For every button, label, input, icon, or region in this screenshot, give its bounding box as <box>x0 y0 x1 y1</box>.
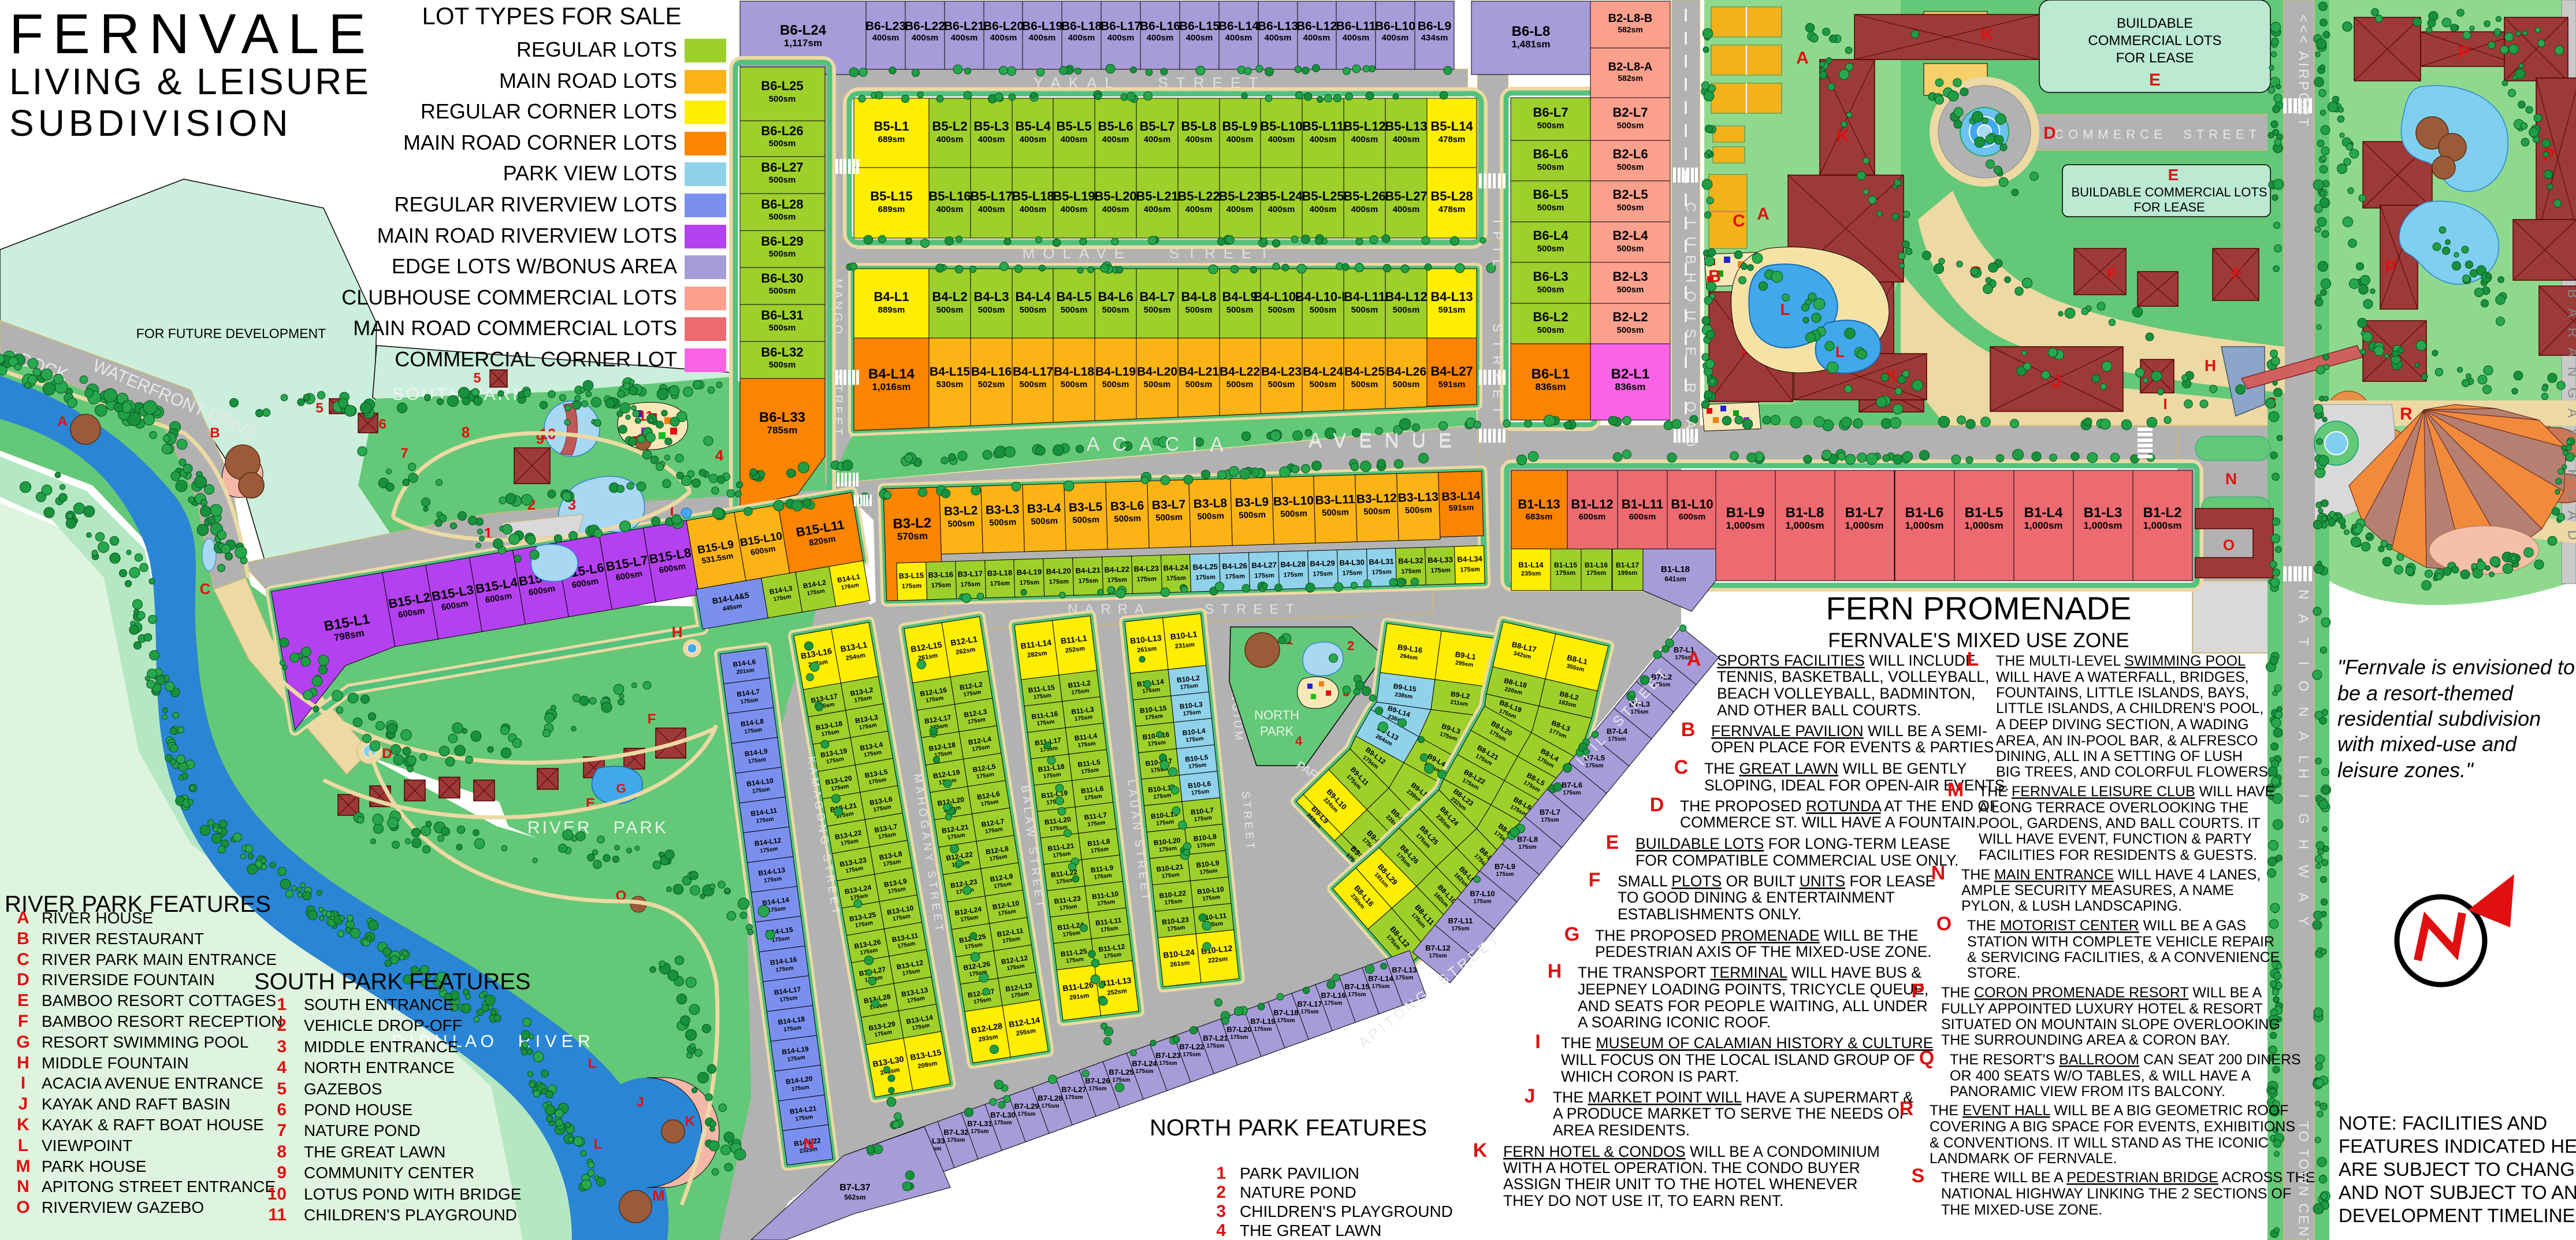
svg-text:B7-L26: B7-L26 <box>1085 1076 1110 1085</box>
svg-text:478sm: 478sm <box>1438 205 1466 214</box>
svg-text:C L U B H O U S E R O A D: C L U B H O U S E R O A D <box>1683 202 1698 449</box>
svg-text:1,000sm: 1,000sm <box>2143 520 2181 531</box>
svg-text:500sm: 500sm <box>1226 305 1254 315</box>
svg-text:175sm: 175sm <box>1254 1026 1272 1033</box>
svg-text:B1-L5: B1-L5 <box>1965 505 2003 521</box>
svg-text:B7-L14: B7-L14 <box>1368 974 1393 983</box>
svg-text:REGULAR CORNER LOTS: REGULAR CORNER LOTS <box>421 99 677 123</box>
svg-text:B5-L23: B5-L23 <box>1218 189 1261 203</box>
svg-text:B4-L10-B: B4-L10-B <box>1295 289 1351 304</box>
svg-text:B6-L29: B6-L29 <box>761 234 803 248</box>
svg-text:FEATURES INDICATED HERE: FEATURES INDICATED HERE <box>2339 1135 2576 1157</box>
svg-text:175sm: 175sm <box>1395 975 1413 981</box>
svg-text:COMMERCE ST. WILL HAVE A FOUNT: COMMERCE ST. WILL HAVE A FOUNTAIN. <box>1680 814 1980 831</box>
svg-text:F: F <box>2107 265 2116 282</box>
svg-text:591sm: 591sm <box>1438 380 1466 389</box>
svg-text:KAYAK AND RAFT BASIN: KAYAK AND RAFT BASIN <box>42 1095 231 1113</box>
svg-text:B4-L18: B4-L18 <box>1054 365 1094 378</box>
svg-text:B1-L12: B1-L12 <box>1571 497 1613 511</box>
svg-text:1,481sm: 1,481sm <box>1511 39 1550 50</box>
svg-text:B: B <box>17 929 29 948</box>
svg-text:E: E <box>2168 166 2179 184</box>
svg-text:B7-L8: B7-L8 <box>1517 835 1538 844</box>
svg-text:Q: Q <box>1919 1047 1934 1069</box>
svg-text:PEDESTRIAN AXIS OF THE MIXED-U: PEDESTRIAN AXIS OF THE MIXED-USE ZONE. <box>1595 943 1932 960</box>
svg-text:1,000sm: 1,000sm <box>1726 520 1764 531</box>
svg-text:175sm: 175sm <box>1183 1052 1200 1058</box>
svg-text:400sm: 400sm <box>1020 205 1047 214</box>
svg-text:B6-L32: B6-L32 <box>761 345 803 359</box>
svg-text:BAMBOO RESORT RECEPTION: BAMBOO RESORT RECEPTION <box>42 1012 282 1030</box>
svg-text:REGULAR LOTS: REGULAR LOTS <box>516 38 677 61</box>
svg-text:FOR FUTURE DEVELOPMENT: FOR FUTURE DEVELOPMENT <box>136 326 326 341</box>
svg-text:THE FERNVALE LEISURE CLUB WILL: THE FERNVALE LEISURE CLUB WILL HAVE <box>1979 784 2274 800</box>
svg-text:175sm: 175sm <box>961 581 981 588</box>
svg-text:FERNVALE PAVILION WILL BE A SE: FERNVALE PAVILION WILL BE A SEMI- <box>1711 722 1987 740</box>
svg-text:500sm: 500sm <box>1061 305 1088 315</box>
svg-text:B2-L6: B2-L6 <box>1612 147 1648 161</box>
svg-text:175sm: 175sm <box>1300 1009 1318 1015</box>
svg-text:582sm: 582sm <box>1618 25 1643 34</box>
svg-text:COVERING A BIG SPACE FOR EVENT: COVERING A BIG SPACE FOR EVENTS, EXHIBIT… <box>1930 1119 2295 1135</box>
svg-text:B5-L10: B5-L10 <box>1260 119 1302 133</box>
svg-text:THE GREAT LAWN: THE GREAT LAWN <box>304 1143 445 1161</box>
svg-text:B5-L18: B5-L18 <box>1012 189 1054 203</box>
svg-text:B1-L4: B1-L4 <box>2024 505 2063 521</box>
svg-text:683sm: 683sm <box>1526 512 1553 522</box>
svg-text:500sm: 500sm <box>769 360 796 370</box>
svg-text:B6-L26: B6-L26 <box>761 124 803 138</box>
svg-text:PANORAMIC VIEW FROM ITS BALCON: PANORAMIC VIEW FROM ITS BALCONY. <box>1950 1083 2225 1100</box>
svg-text:175sm: 175sm <box>1518 844 1536 851</box>
svg-text:WILL HAVE EVENT, FUNCTION & PA: WILL HAVE EVENT, FUNCTION & PARTY <box>1979 831 2252 847</box>
svg-text:B5-L25: B5-L25 <box>1302 189 1344 203</box>
svg-text:B4-L30: B4-L30 <box>1339 558 1365 567</box>
svg-text:DEVELOPMENT TIMELINE.: DEVELOPMENT TIMELINE. <box>2339 1205 2576 1226</box>
svg-text:400sm: 400sm <box>978 205 1005 214</box>
svg-text:B4-L5: B4-L5 <box>1056 289 1091 304</box>
svg-text:175sm: 175sm <box>1254 572 1274 580</box>
svg-text:500sm: 500sm <box>769 212 796 222</box>
svg-text:B5-L16: B5-L16 <box>928 189 971 203</box>
svg-text:APITONG STREET ENTRANCE: APITONG STREET ENTRANCE <box>42 1178 276 1196</box>
svg-text:1,000sm: 1,000sm <box>1785 520 1824 531</box>
svg-text:1,016sm: 1,016sm <box>872 381 910 392</box>
svg-text:PARK: PARK <box>1260 724 1294 738</box>
svg-text:562sm: 562sm <box>844 1193 865 1201</box>
svg-text:500sm: 500sm <box>1363 506 1391 517</box>
svg-text:500sm: 500sm <box>1185 305 1213 315</box>
svg-text:600sm: 600sm <box>1579 512 1606 522</box>
svg-text:400sm: 400sm <box>1061 205 1088 214</box>
svg-text:400sm: 400sm <box>1185 205 1213 214</box>
svg-text:175sm: 175sm <box>1429 953 1447 959</box>
svg-text:NATIONAL HIGHWAY LINKING THE 2: NATIONAL HIGHWAY LINKING THE 2 SECTIONS … <box>1941 1186 2291 1202</box>
svg-text:B6-L17: B6-L17 <box>1101 20 1141 33</box>
svg-text:8: 8 <box>462 424 470 441</box>
svg-text:ESTABLISHMENTS ONLY.: ESTABLISHMENTS ONLY. <box>1618 905 1801 923</box>
svg-text:500sm: 500sm <box>947 518 975 529</box>
svg-text:3: 3 <box>1216 1202 1226 1221</box>
svg-text:"Fernvale is envisioned to: "Fernvale is envisioned to <box>2337 655 2575 679</box>
svg-text:500sm: 500sm <box>769 323 796 333</box>
svg-text:BAMBOO RESORT COTTAGES: BAMBOO RESORT COTTAGES <box>42 992 276 1009</box>
svg-text:400sm: 400sm <box>1351 205 1378 214</box>
svg-text:C: C <box>17 950 29 969</box>
svg-text:B6-L12: B6-L12 <box>1296 20 1337 33</box>
svg-text:O: O <box>2223 536 2235 554</box>
svg-text:B1-L6: B1-L6 <box>1905 505 1944 521</box>
svg-text:D: D <box>17 970 29 989</box>
svg-text:AREA, AN IN-POOL BAR, & ALFRES: AREA, AN IN-POOL BAR, & ALFRESCO <box>1996 733 2258 749</box>
svg-text:B7-L16: B7-L16 <box>1321 991 1345 1000</box>
svg-text:B3-L10: B3-L10 <box>1273 494 1314 508</box>
svg-text:OPEN PLACE FOR EVENTS & PARTIE: OPEN PLACE FOR EVENTS & PARTIES. <box>1711 738 1998 756</box>
svg-text:500sm: 500sm <box>1226 380 1254 389</box>
svg-text:500sm: 500sm <box>1144 305 1171 315</box>
svg-text:500sm: 500sm <box>1351 305 1378 315</box>
svg-text:400sm: 400sm <box>1225 33 1252 43</box>
svg-text:B3-L4: B3-L4 <box>1027 502 1061 516</box>
svg-text:1,000sm: 1,000sm <box>2083 520 2122 531</box>
svg-text:B5-L24: B5-L24 <box>1260 189 1303 203</box>
svg-text:B6-L8: B6-L8 <box>1512 24 1551 39</box>
svg-text:1,000sm: 1,000sm <box>1964 520 2003 531</box>
svg-text:AVENUE: AVENUE <box>1309 429 1464 451</box>
svg-text:B6-L10: B6-L10 <box>1375 20 1415 33</box>
svg-text:F: F <box>648 711 656 727</box>
svg-text:KAYAK & RAFT BOAT HOUSE: KAYAK & RAFT BOAT HOUSE <box>42 1116 264 1134</box>
svg-text:400sm: 400sm <box>1393 135 1420 144</box>
svg-text:<<< AIRPORT: <<< AIRPORT <box>2296 14 2311 129</box>
svg-text:400sm: 400sm <box>936 205 964 214</box>
svg-text:500sm: 500sm <box>1322 507 1349 518</box>
svg-text:400sm: 400sm <box>1061 135 1088 144</box>
svg-text:400sm: 400sm <box>1351 135 1378 144</box>
svg-text:CLUBHOUSE COMMERCIAL LOTS: CLUBHOUSE COMMERCIAL LOTS <box>341 285 677 309</box>
svg-text:P: P <box>1912 980 1925 1002</box>
svg-text:B4-L19: B4-L19 <box>1016 567 1042 577</box>
svg-text:THE GREAT LAWN: THE GREAT LAWN <box>1240 1222 1381 1239</box>
svg-text:L: L <box>18 1136 28 1155</box>
svg-text:B4-L3: B4-L3 <box>973 289 1009 304</box>
svg-text:175sm: 175sm <box>1206 1043 1224 1049</box>
svg-text:K: K <box>1473 1139 1488 1161</box>
svg-text:4: 4 <box>715 447 724 464</box>
svg-text:& SERVICING FACILITIES, & A CO: & SERVICING FACILITIES, & A CONVENIENCE <box>1967 949 2280 966</box>
svg-text:B5-L14: B5-L14 <box>1430 119 1473 133</box>
svg-text:1,000sm: 1,000sm <box>2024 520 2062 531</box>
svg-text:500sm: 500sm <box>769 94 796 104</box>
svg-text:THE SURROUNDING AREA & CORON B: THE SURROUNDING AREA & CORON BAY. <box>1941 1032 2231 1048</box>
svg-text:500sm: 500sm <box>1061 380 1088 389</box>
svg-text:B7-L17: B7-L17 <box>1297 1000 1322 1008</box>
svg-text:B7-L31: B7-L31 <box>967 1119 992 1128</box>
svg-text:B3-L9: B3-L9 <box>1235 495 1269 510</box>
svg-text:B5-L22: B5-L22 <box>1177 189 1220 203</box>
svg-text:500sm: 500sm <box>1617 121 1644 131</box>
svg-text:FOR COMPATIBLE COMMERCIAL USE: FOR COMPATIBLE COMMERCIAL USE ONLY. <box>1635 852 1959 869</box>
svg-text:1,000sm: 1,000sm <box>1845 520 1883 531</box>
svg-text:K: K <box>1837 127 1849 146</box>
svg-text:B7-L37: B7-L37 <box>839 1183 870 1193</box>
svg-text:3: 3 <box>277 1037 287 1056</box>
svg-text:B4-L12: B4-L12 <box>1385 289 1427 304</box>
svg-text:RIVERVIEW GAZEBO: RIVERVIEW GAZEBO <box>42 1198 204 1216</box>
svg-text:500sm: 500sm <box>978 305 1005 315</box>
svg-text:EDGE LOTS W/BONUS AREA: EDGE LOTS W/BONUS AREA <box>392 254 677 278</box>
svg-text:500sm: 500sm <box>1351 380 1378 389</box>
svg-text:B7-L6: B7-L6 <box>1562 781 1582 789</box>
svg-text:10: 10 <box>267 1185 287 1204</box>
svg-text:175sm: 175sm <box>1017 1111 1035 1118</box>
svg-text:175sm: 175sm <box>1348 992 1366 998</box>
svg-text:500sm: 500sm <box>769 249 796 259</box>
svg-text:B2-L3: B2-L3 <box>1612 269 1648 284</box>
svg-text:B4-L20: B4-L20 <box>1046 566 1071 576</box>
svg-text:BUILDABLE LOTS FOR LONG-TERM L: BUILDABLE LOTS FOR LONG-TERM LEASE <box>1635 835 1950 852</box>
svg-text:B6-L25: B6-L25 <box>761 79 803 93</box>
svg-text:leisure zones.": leisure zones." <box>2337 758 2474 782</box>
svg-text:B4-L4: B4-L4 <box>1015 289 1051 304</box>
svg-text:B1-L18: B1-L18 <box>1661 565 1690 574</box>
svg-text:E: E <box>2149 70 2161 90</box>
svg-text:I: I <box>1535 1031 1540 1053</box>
svg-text:400sm: 400sm <box>1382 33 1409 43</box>
svg-text:NORTH: NORTH <box>1254 708 1299 722</box>
svg-text:A DEEP DIVING SECTION, A WADIN: A DEEP DIVING SECTION, A WADING <box>1996 716 2249 733</box>
svg-text:B4-L21: B4-L21 <box>1075 566 1101 575</box>
svg-text:2: 2 <box>1216 1183 1226 1202</box>
svg-text:B: B <box>210 425 220 441</box>
svg-text:570sm: 570sm <box>897 530 928 543</box>
svg-text:JEEPNEY LOADING POINTS, TRICYC: JEEPNEY LOADING POINTS, TRICYCLE QUEUE, <box>1578 981 1928 998</box>
svg-text:B7-L10: B7-L10 <box>1470 889 1495 898</box>
svg-text:B6-L2: B6-L2 <box>1533 310 1568 324</box>
svg-text:B5-L27: B5-L27 <box>1385 189 1427 203</box>
svg-text:B4-L25: B4-L25 <box>1192 562 1218 571</box>
svg-text:400sm: 400sm <box>978 135 1005 144</box>
svg-text:B4-L14: B4-L14 <box>868 366 915 382</box>
svg-text:500sm: 500sm <box>1537 244 1564 254</box>
svg-text:THE TRANSPORT TERMINAL WILL HA: THE TRANSPORT TERMINAL WILL HAVE BUS & <box>1578 964 1921 981</box>
svg-text:600sm: 600sm <box>1629 512 1656 522</box>
svg-text:400sm: 400sm <box>990 33 1017 43</box>
svg-text:MIDDLE FOUNTAIN: MIDDLE FOUNTAIN <box>42 1054 189 1072</box>
svg-text:175sm: 175sm <box>1496 871 1514 878</box>
svg-text:175sm: 175sm <box>1283 571 1303 578</box>
svg-text:400sm: 400sm <box>1226 205 1254 214</box>
svg-text:7: 7 <box>277 1121 287 1140</box>
svg-text:O: O <box>16 1198 29 1217</box>
svg-text:434sm: 434sm <box>1421 33 1448 43</box>
svg-text:B5-L26: B5-L26 <box>1343 189 1385 203</box>
svg-text:B6-L1: B6-L1 <box>1532 366 1570 382</box>
svg-text:1: 1 <box>277 995 287 1014</box>
svg-text:CHILDREN'S PLAYGROUND: CHILDREN'S PLAYGROUND <box>1240 1202 1453 1220</box>
svg-text:D: D <box>2043 124 2056 143</box>
svg-text:COMMUNITY CENTER: COMMUNITY CENTER <box>304 1164 474 1182</box>
svg-text:LANDMARK OF FERNVALE.: LANDMARK OF FERNVALE. <box>1930 1150 2117 1167</box>
svg-text:400sm: 400sm <box>1107 33 1135 43</box>
svg-text:G: G <box>16 1033 29 1052</box>
svg-text:B5-L2: B5-L2 <box>932 119 967 133</box>
svg-text:B7-L18: B7-L18 <box>1273 1008 1298 1017</box>
svg-text:residential subdivision: residential subdivision <box>2337 707 2541 730</box>
svg-text:H: H <box>672 623 683 641</box>
svg-text:K: K <box>1981 25 1994 44</box>
svg-text:J: J <box>636 1094 644 1110</box>
svg-text:AND NOT SUBJECT TO ANY: AND NOT SUBJECT TO ANY <box>2339 1182 2576 1203</box>
svg-text:B6-L13: B6-L13 <box>1258 20 1298 33</box>
svg-text:B2-L8-B: B2-L8-B <box>1608 12 1653 25</box>
svg-text:H I G H W A Y: H I G H W A Y <box>2296 768 2311 931</box>
svg-text:I: I <box>21 1074 25 1093</box>
svg-text:E: E <box>1606 831 1619 853</box>
svg-text:B4-L9: B4-L9 <box>1222 289 1257 304</box>
svg-text:B3-L15: B3-L15 <box>899 571 924 580</box>
svg-text:B3-L14: B3-L14 <box>1441 489 1481 503</box>
svg-text:B7-L23: B7-L23 <box>1155 1051 1180 1060</box>
svg-text:B4-L11: B4-L11 <box>1344 289 1385 304</box>
svg-text:A LONG TERRACE OVERLOOKING THE: A LONG TERRACE OVERLOOKING THE <box>1979 800 2248 816</box>
svg-text:BUILDABLE: BUILDABLE <box>2117 16 2193 31</box>
svg-text:L: L <box>1835 343 1845 361</box>
svg-text:L: L <box>594 1137 603 1152</box>
svg-text:175sm: 175sm <box>990 580 1010 588</box>
svg-text:L: L <box>1967 648 1979 670</box>
svg-text:B7-L20: B7-L20 <box>1226 1025 1251 1034</box>
svg-text:C: C <box>1733 211 1745 231</box>
svg-text:DINING, ALL IN A SETTING OF LU: DINING, ALL IN A SETTING OF LUSH <box>1996 748 2243 764</box>
svg-text:B6-L19: B6-L19 <box>1022 20 1062 33</box>
svg-text:B1-L9: B1-L9 <box>1726 505 1765 521</box>
svg-text:O: O <box>1936 913 1951 935</box>
svg-text:500sm: 500sm <box>989 517 1016 528</box>
svg-text:500sm: 500sm <box>1155 513 1183 523</box>
svg-text:FERNVALE: FERNVALE <box>9 2 375 65</box>
svg-text:LITTLE ISLANDS, A CHILDREN'S P: LITTLE ISLANDS, A CHILDREN'S POOL, <box>1996 700 2263 716</box>
svg-text:THE MARKET POINT WILL HAVE A S: THE MARKET POINT WILL HAVE A SUPERMART & <box>1553 1089 1913 1106</box>
svg-text:B1-L8: B1-L8 <box>1786 505 1824 521</box>
svg-text:STATION WITH COMPLETE VEHICLE: STATION WITH COMPLETE VEHICLE REPAIR <box>1967 934 2274 950</box>
svg-text:175sm: 175sm <box>1430 567 1451 574</box>
svg-text:VIEWPOINT: VIEWPOINT <box>42 1137 132 1154</box>
svg-text:GAZEBOS: GAZEBOS <box>304 1080 382 1098</box>
svg-text:I P I L: I P I L <box>1490 220 1505 269</box>
svg-text:400sm: 400sm <box>936 135 964 144</box>
svg-text:B7-L25: B7-L25 <box>1109 1068 1133 1076</box>
svg-text:175sm: 175sm <box>1137 576 1157 583</box>
svg-text:WHICH CORON IS PART.: WHICH CORON IS PART. <box>1561 1068 1739 1085</box>
svg-text:with mixed-use and: with mixed-use and <box>2337 732 2517 756</box>
svg-text:175sm: 175sm <box>1065 1094 1083 1101</box>
svg-text:500sm: 500sm <box>769 175 796 185</box>
svg-text:B4-L34: B4-L34 <box>1457 554 1483 563</box>
svg-text:F: F <box>1589 869 1601 891</box>
svg-text:400sm: 400sm <box>872 33 899 43</box>
svg-text:500sm: 500sm <box>1197 511 1224 522</box>
svg-text:be a resort-themed: be a resort-themed <box>2337 681 2514 705</box>
svg-text:B4-L24: B4-L24 <box>1303 365 1343 378</box>
svg-text:NATURE POND: NATURE POND <box>304 1122 421 1139</box>
svg-text:400sm: 400sm <box>1144 135 1171 144</box>
svg-text:B4-L13: B4-L13 <box>1430 289 1473 304</box>
svg-text:F: F <box>18 1012 28 1031</box>
svg-text:B4-L20: B4-L20 <box>1137 365 1177 378</box>
svg-text:B4-L19: B4-L19 <box>1095 365 1136 378</box>
svg-text:B: B <box>1681 719 1696 741</box>
svg-text:B3-L6: B3-L6 <box>1110 499 1144 514</box>
svg-text:B3-L8: B3-L8 <box>1194 496 1228 511</box>
svg-text:THE MUSEUM OF CALAMIAN HISTORY: THE MUSEUM OF CALAMIAN HISTORY & CULTURE <box>1561 1034 1933 1052</box>
svg-text:RIVER HOUSE: RIVER HOUSE <box>42 909 153 927</box>
svg-text:NORTH PARK FEATURES: NORTH PARK FEATURES <box>1150 1115 1427 1141</box>
svg-text:175sm: 175sm <box>1020 579 1040 586</box>
svg-text:400sm: 400sm <box>1268 205 1295 214</box>
svg-text:B6-L3: B6-L3 <box>1533 269 1568 284</box>
svg-text:CHILDREN'S PLAYGROUND: CHILDREN'S PLAYGROUND <box>304 1206 517 1224</box>
svg-text:B2-L5: B2-L5 <box>1612 187 1648 202</box>
svg-text:500sm: 500sm <box>1114 514 1141 524</box>
svg-text:B6-L14: B6-L14 <box>1218 20 1259 33</box>
svg-text:500sm: 500sm <box>1280 508 1307 519</box>
svg-text:NATURE POND: NATURE POND <box>1240 1183 1356 1201</box>
svg-text:B4-L28: B4-L28 <box>1280 559 1306 569</box>
svg-text:500sm: 500sm <box>1310 305 1337 315</box>
svg-text:175sm: 175sm <box>1277 1018 1295 1024</box>
svg-text:500sm: 500sm <box>936 305 964 315</box>
svg-text:582sm: 582sm <box>1618 73 1643 83</box>
svg-text:500sm: 500sm <box>1537 121 1564 131</box>
svg-text:175sm: 175sm <box>1556 570 1575 577</box>
svg-text:B1-L15: B1-L15 <box>1554 561 1577 569</box>
svg-text:175sm: 175sm <box>1371 983 1389 990</box>
svg-text:B7-L30: B7-L30 <box>990 1111 1015 1119</box>
svg-text:THE MOTORIST CENTER WILL BE A: THE MOTORIST CENTER WILL BE A GAS <box>1967 918 2246 934</box>
svg-text:175sm: 175sm <box>1473 899 1491 905</box>
svg-text:G: G <box>616 781 626 796</box>
svg-text:S T R E E T: S T R E E T <box>1490 324 1505 416</box>
svg-text:B7-L7: B7-L7 <box>1540 808 1560 816</box>
svg-text:B4-L31: B4-L31 <box>1369 557 1394 566</box>
svg-text:B4-L17: B4-L17 <box>1013 365 1053 378</box>
svg-text:175sm: 175sm <box>1460 566 1480 573</box>
svg-text:FOR LEASE: FOR LEASE <box>2133 200 2205 214</box>
svg-text:MAIN ROAD LOTS: MAIN ROAD LOTS <box>499 69 677 92</box>
svg-text:B5-L5: B5-L5 <box>1056 119 1091 133</box>
svg-text:591sm: 591sm <box>1438 305 1466 315</box>
svg-text:F: F <box>2232 265 2242 282</box>
svg-text:500sm: 500sm <box>1617 162 1644 172</box>
svg-text:500sm: 500sm <box>1310 380 1337 389</box>
svg-text:M: M <box>1947 779 1964 801</box>
svg-text:B4-L32: B4-L32 <box>1398 556 1423 565</box>
svg-text:235sm: 235sm <box>1521 570 1541 577</box>
svg-text:J: J <box>18 1094 28 1113</box>
svg-text:689sm: 689sm <box>878 135 905 144</box>
svg-text:B1-L14: B1-L14 <box>1518 560 1544 569</box>
svg-text:400sm: 400sm <box>1147 33 1174 43</box>
svg-text:600sm: 600sm <box>1679 512 1706 522</box>
svg-text:B1-L13: B1-L13 <box>1518 497 1560 511</box>
svg-text:COMMERCE STREET: COMMERCE STREET <box>2054 127 2261 142</box>
svg-text:B5-L28: B5-L28 <box>1430 189 1473 203</box>
svg-text:591sm: 591sm <box>1448 503 1474 513</box>
svg-text:B3-L13: B3-L13 <box>1398 491 1439 505</box>
svg-text:400sm: 400sm <box>1102 135 1129 144</box>
svg-text:B1-L17: B1-L17 <box>1616 561 1639 569</box>
